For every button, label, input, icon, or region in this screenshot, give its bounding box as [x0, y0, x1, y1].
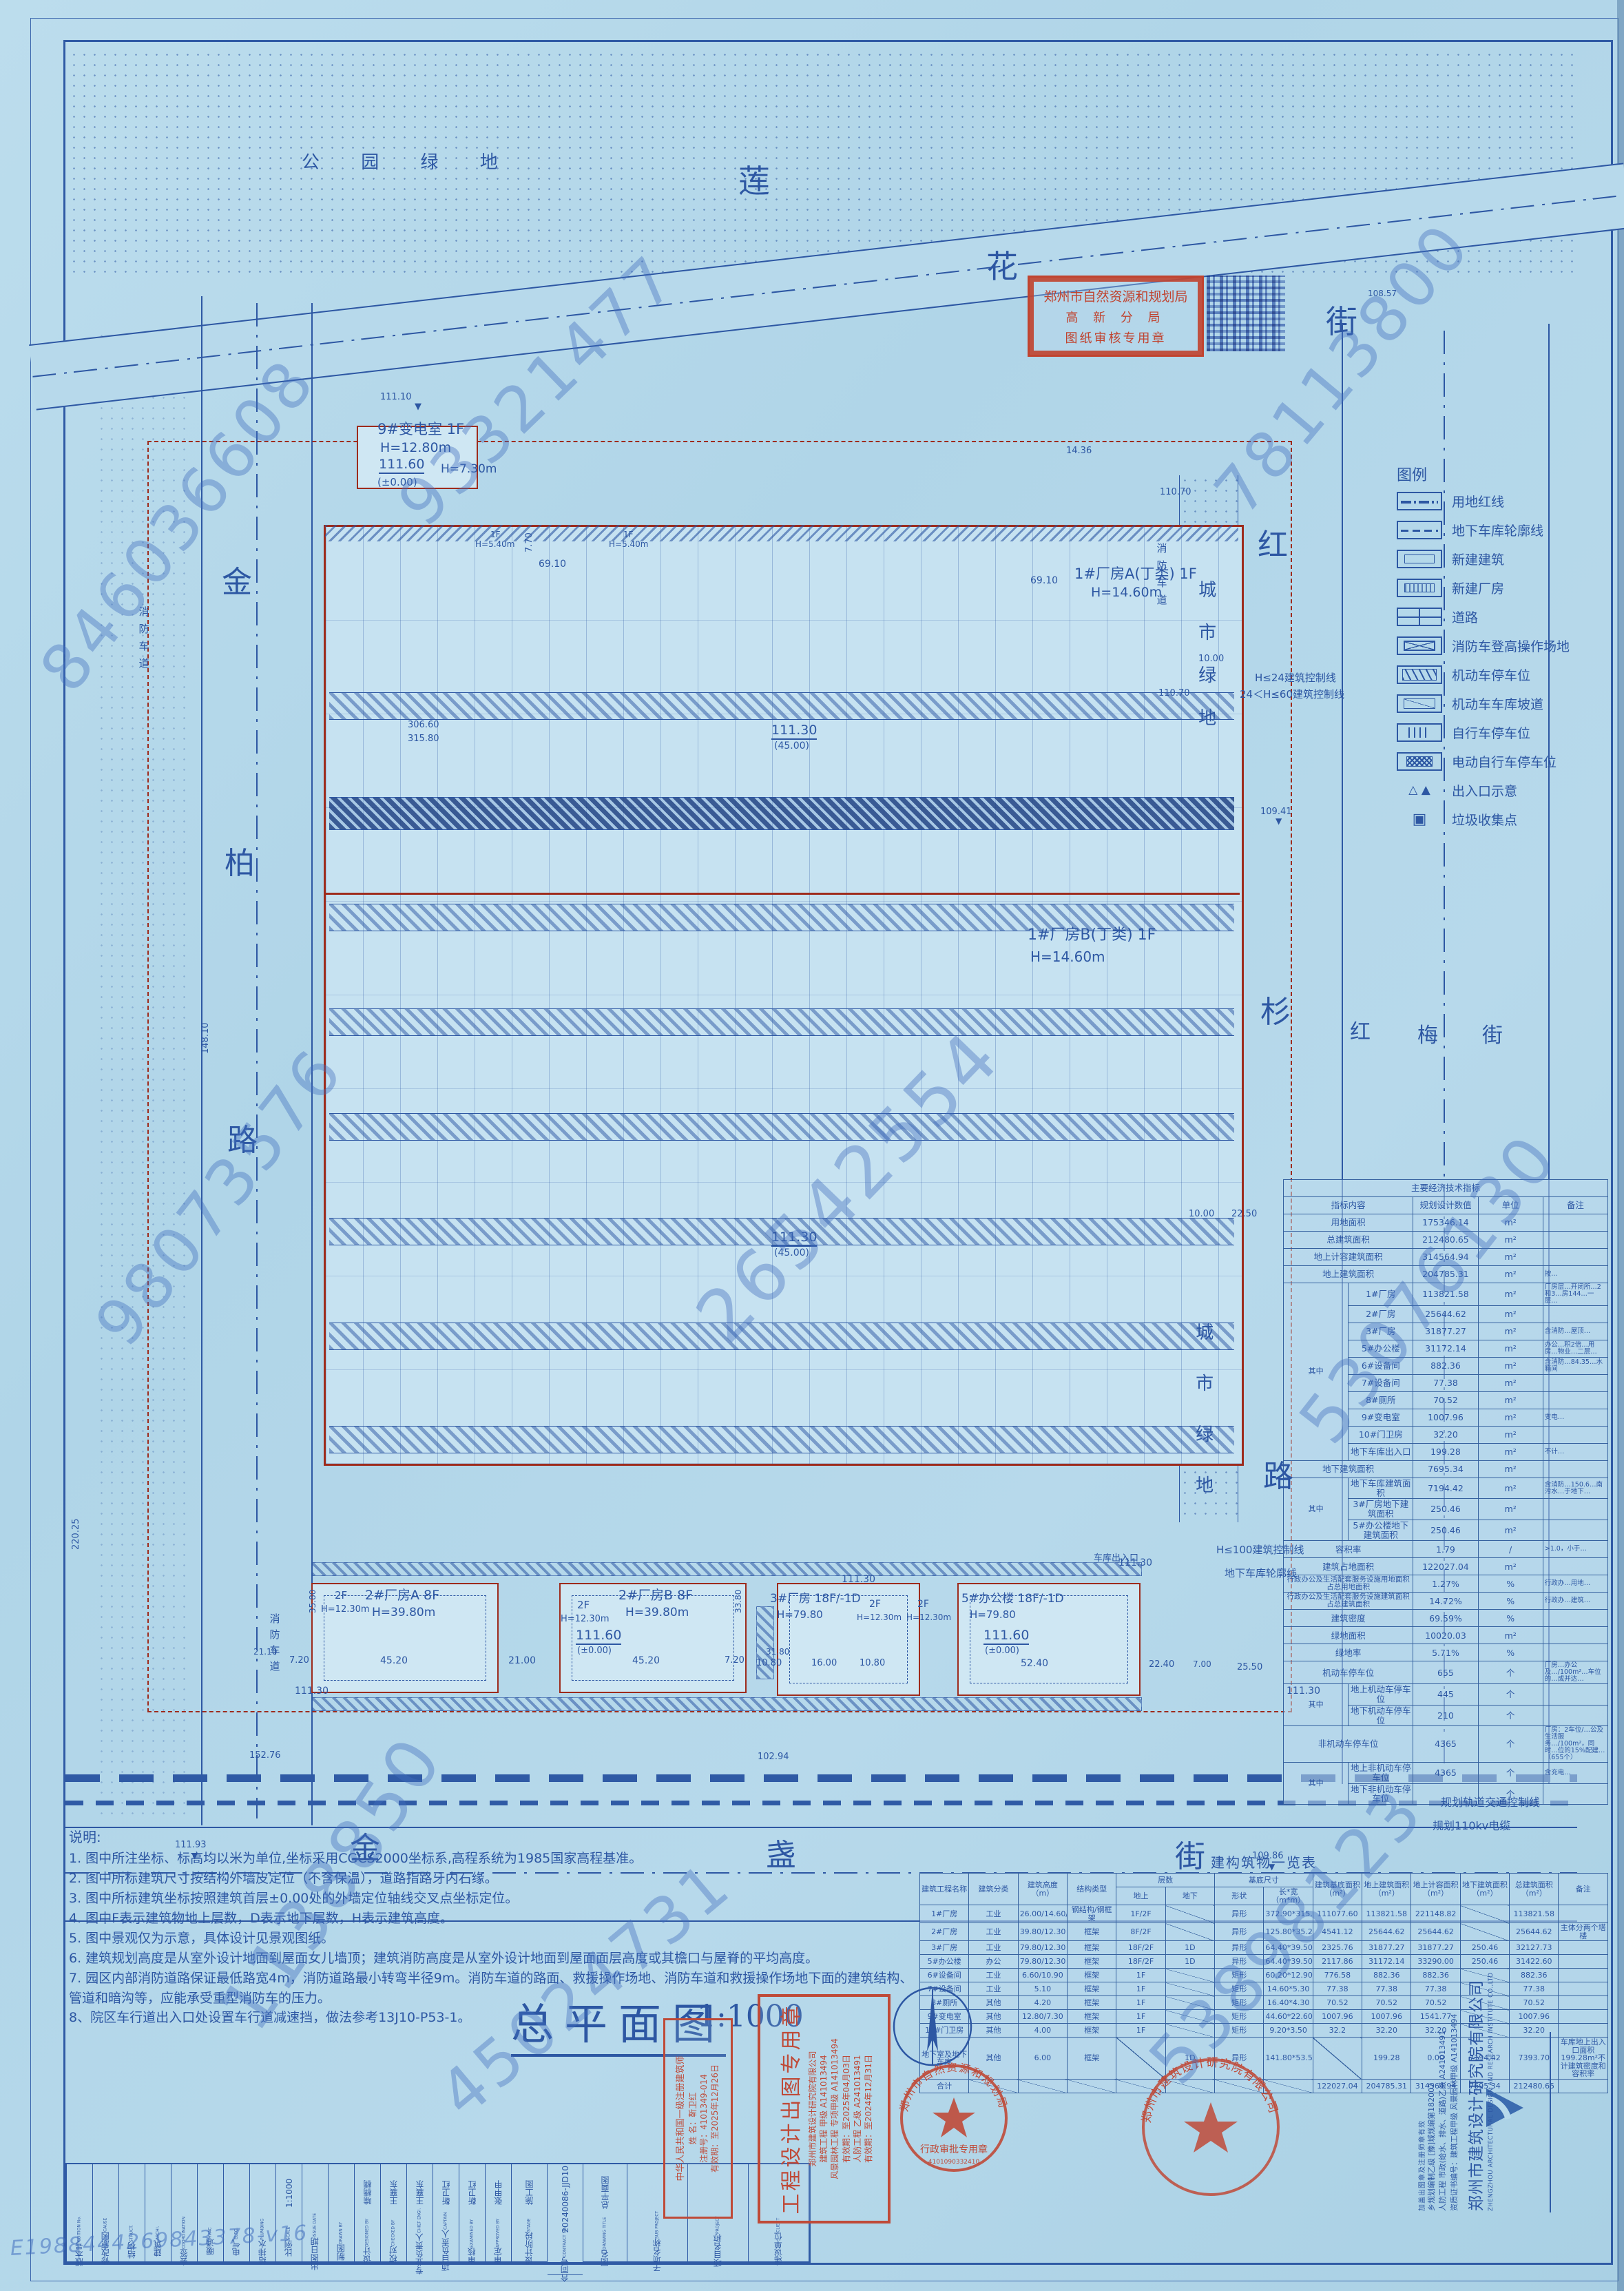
- table-cell: [1543, 1684, 1607, 1706]
- table-cell: 125.80*35.20: [1264, 1923, 1313, 1941]
- table-cell: 异形: [1215, 1905, 1264, 1923]
- titleblock-label-en: DESIGNED BY: [365, 2219, 369, 2248]
- table-cell: 结构类型: [1068, 1874, 1116, 1905]
- table-cell: [1165, 1969, 1214, 1982]
- titleblock-label: 子项名称SUB PROJECT: [627, 2221, 687, 2262]
- table-cell: 113821.58: [1510, 1905, 1559, 1923]
- table-cell: 框架: [1068, 1969, 1116, 1982]
- table-cell: [1543, 1783, 1607, 1805]
- titleblock-col-修改原因: 修改原因CAUSE: [93, 2164, 119, 2262]
- titleblock-label-en: COORDINATION: [182, 2217, 186, 2250]
- stamp-line: 注册号：4101349-014: [698, 2074, 709, 2163]
- table-cell: 异形: [1215, 1923, 1264, 1941]
- table-cell: 个: [1478, 1783, 1543, 1805]
- table-cell: 单位: [1478, 1197, 1543, 1214]
- table-cell: m²: [1478, 1426, 1543, 1443]
- table-cell: 地上: [1116, 1887, 1165, 1905]
- table-cell: 1007.96: [1313, 2010, 1362, 2024]
- stamp-line: 郑州市自然资源和规划局: [1043, 287, 1187, 305]
- new-fact-symbol-icon: [1397, 579, 1442, 597]
- table-cell: [1543, 1232, 1607, 1249]
- table-cell: 250.46: [1460, 1955, 1509, 1969]
- internal-road-band: [329, 1218, 1234, 1245]
- table-cell: 工业: [969, 1969, 1018, 1982]
- table-cell: 地上机动车停车位: [1349, 1684, 1413, 1706]
- table-cell: 1F: [1116, 1982, 1165, 1996]
- table-cell: 70.52: [1313, 1996, 1362, 2010]
- issue-stamp: 工程设计出图专用章 郑州市建筑设计研究院有限公司 建筑工程 甲级 A141013…: [758, 1994, 891, 2223]
- table-cell: 5.10: [1018, 1982, 1067, 1996]
- trash-symbol-icon: [1397, 810, 1442, 829]
- table-cell: 容积率: [1284, 1541, 1413, 1558]
- table-cell: %: [1478, 1644, 1543, 1661]
- table-cell: 7194.42: [1413, 1478, 1478, 1499]
- titleblock-col-制图: 制图DRAWN BY: [329, 2164, 355, 2262]
- table-cell: 框架: [1068, 1955, 1116, 1969]
- table-cell: 3#厂房地下建筑面积: [1349, 1499, 1413, 1520]
- entry-symbol-icon: [1397, 781, 1442, 800]
- table-cell: 1.27%: [1413, 1575, 1478, 1593]
- table-cell: 250.46: [1413, 1499, 1478, 1520]
- table-cell: 44.60*22.60: [1264, 2010, 1313, 2024]
- table-cell: m²: [1478, 1478, 1543, 1499]
- table-cell: 4541.12: [1313, 1923, 1362, 1941]
- titleblock-col-合同号: 20240086-JJD10合同号CONTRACT No.: [548, 2164, 583, 2262]
- table-cell: 矩形: [1215, 1996, 1264, 2010]
- titleblock-label-en: ARCHI.: [156, 2226, 160, 2240]
- table-cell: 122027.04: [1313, 2080, 1362, 2093]
- table-cell: 行政办公及生活配套服务设施建筑面积占总建筑面积: [1284, 1593, 1413, 1610]
- note-item: 1. 图中所注坐标、标高均以米为单位,坐标采用CGCS2000坐标系,高程系统为…: [69, 1849, 923, 1869]
- table-cell: 4.00: [1018, 2024, 1067, 2038]
- table-cell: 建筑基底面积（m²）: [1313, 1874, 1362, 1905]
- table-cell: 25644.62: [1413, 1305, 1478, 1323]
- table-cell: 372.90*315.60: [1264, 1905, 1313, 1923]
- table-cell: 31422.60: [1510, 1955, 1559, 1969]
- note-item: 3. 图中所标建筑坐标按照建筑首层±0.00处的外墙定位轴线交叉点坐标定位。: [69, 1889, 923, 1909]
- titleblock-label-cn: 项目负责人: [441, 2230, 450, 2271]
- titleblock-label-cn: 专业负责人: [415, 2233, 424, 2274]
- titleblock-label-en: PLUMBING: [260, 2218, 264, 2239]
- table-cell: m²: [1478, 1305, 1543, 1323]
- svg-text:4101090332410: 4101090332410: [928, 2159, 980, 2166]
- titleblock-col-结构: 结构STRUCT.: [119, 2164, 145, 2262]
- building-tower-outline: [789, 1595, 908, 1683]
- table-cell: 厂房…办公及…/100m²…车位的…成并达…: [1543, 1661, 1607, 1684]
- table-cell: 框架: [1068, 1941, 1116, 1955]
- titleblock-col-项目负责人: 靳卫红项目负责人CAPTAIN: [433, 2164, 459, 2262]
- building-9-substation: [357, 426, 478, 489]
- titleblock-value: 王襄东: [388, 2164, 399, 2221]
- table-cell: 16.40*4.30: [1264, 1996, 1313, 2010]
- titleblock-label-en: EXAMINED BY: [470, 2219, 474, 2247]
- table-cell: [1559, 1941, 1608, 1955]
- legend-item-label: 新建厂房: [1452, 579, 1504, 597]
- table-cell: 70.52: [1510, 1996, 1559, 2010]
- table-cell: 776.58: [1313, 1969, 1362, 1982]
- table-cell: 1D: [1165, 1941, 1214, 1955]
- titleblock-label-en: ELEC.: [234, 2227, 238, 2239]
- table-cell: 个: [1478, 1684, 1543, 1706]
- legend-item-label: 新建建筑: [1452, 550, 1504, 568]
- titleblock-label: 建筑ARCHI.: [145, 2221, 171, 2262]
- table-cell: m²: [1478, 1627, 1543, 1644]
- titleblock-label-cn: 电气: [232, 2239, 241, 2256]
- road-symbol-icon: [1397, 608, 1442, 626]
- titleblock-label-en: CAPTAIN: [444, 2212, 448, 2229]
- titleblock-col-给排水: 给排水PLUMBING: [250, 2164, 276, 2262]
- titleblock-value: 张甲甲: [492, 2164, 504, 2221]
- legend-item-label: 道路: [1452, 608, 1478, 626]
- table-cell: [1543, 1249, 1607, 1266]
- garage-outline-symbol-icon: [1397, 521, 1442, 539]
- table-cell: /: [1478, 1541, 1543, 1558]
- table-cell: [1068, 2080, 1116, 2093]
- stamp-line: 高 新 分 局: [1065, 308, 1165, 326]
- legend-item: 出入口示意: [1397, 781, 1607, 800]
- table-cell: 建筑密度: [1284, 1610, 1413, 1627]
- table-cell: 7#设备间: [1349, 1374, 1413, 1391]
- table-cell: 建筑分类: [969, 1874, 1018, 1905]
- table-cell: 1007.96: [1413, 1409, 1478, 1426]
- factory-roof-hatch: [325, 525, 1238, 541]
- table-cell: 个: [1478, 1705, 1543, 1726]
- table-cell: 矩形: [1215, 2024, 1264, 2038]
- table-cell: 250.46: [1460, 1941, 1509, 1955]
- table-cell: 6#设备间: [1349, 1357, 1413, 1374]
- table-cell: 10#门卫房: [1349, 1426, 1413, 1443]
- legend-item: 机动车停车位: [1397, 665, 1607, 684]
- table-cell: 25644.62: [1362, 1923, 1411, 1941]
- table-cell: [1543, 1374, 1607, 1391]
- table-cell: 矩形: [1215, 1969, 1264, 1982]
- titleblock-col-专业负责人: 王襄东专业负责人CHIEF ENGI.: [407, 2164, 433, 2262]
- table-cell: 1007.96: [1362, 2010, 1411, 2024]
- titleblock-label: 会签COORDINATION: [171, 2221, 197, 2262]
- table-cell: 变电…: [1543, 1409, 1607, 1426]
- table-cell: 其中: [1284, 1478, 1349, 1541]
- titleblock-label-en: CHIEF ENGI.: [417, 2208, 421, 2233]
- titleblock-value: 20240086-JJD10: [561, 2164, 570, 2235]
- table-cell: 总建筑面积（m²）: [1510, 1874, 1559, 1905]
- table-cell: [1543, 1391, 1607, 1409]
- table-cell: m²: [1478, 1499, 1543, 1520]
- table-cell: 地下建筑面积: [1284, 1460, 1413, 1478]
- titleblock-label-cn: 项目名称: [714, 2234, 722, 2267]
- table-cell: 框架: [1068, 2038, 1116, 2080]
- note-item: 2. 图中所标建筑尺寸按结构外墙皮定位（不含保温），道路指路牙内石缘。: [69, 1869, 923, 1889]
- stamp-line: 姓 名：靳卫红: [687, 2093, 698, 2145]
- table-cell: m²: [1478, 1391, 1543, 1409]
- table-cell: m²: [1478, 1443, 1543, 1460]
- titleblock-col-暖通: 暖通HVAC: [198, 2164, 224, 2262]
- table-cell: 64.40*39.50: [1264, 1941, 1313, 1955]
- table-cell: 1F: [1116, 1996, 1165, 2010]
- table-cell: m²: [1478, 1460, 1543, 1478]
- table-cell: 4365: [1413, 1726, 1478, 1763]
- titleblock-value: 总平面图: [599, 2164, 611, 2221]
- company-cert: 人防工程 市政(给水、排水、道路)乙级 A241013491: [1437, 2032, 1449, 2211]
- table-cell: [1559, 1982, 1608, 1996]
- titleblock-label-cn: 制图: [337, 2244, 346, 2261]
- titleblock-label-cn: 图名: [601, 2250, 610, 2266]
- table-cell: 2325.76: [1313, 1941, 1362, 1955]
- table-cell: [1559, 2010, 1608, 2024]
- table-cell: 长*宽（m*m）: [1264, 1887, 1313, 1905]
- note-item: 5. 图中景观仅为示意，具体设计见景观图纸。: [69, 1929, 923, 1949]
- table-cell: 122027.04: [1413, 1558, 1478, 1575]
- table-cell: 5#办公楼: [1349, 1340, 1413, 1357]
- titleblock-label-cn: 比例: [284, 2240, 293, 2257]
- building-tower-outline: [970, 1595, 1128, 1683]
- table-cell: 规划设计数值: [1413, 1197, 1478, 1214]
- table-cell: 办公: [969, 1955, 1018, 1969]
- table-cell: 绿地面积: [1284, 1627, 1413, 1644]
- table-cell: 31172.14: [1362, 1955, 1411, 1969]
- table-cell: [1313, 2038, 1362, 2080]
- fire-lane-band: [329, 797, 1234, 830]
- table-cell: [1543, 1558, 1607, 1575]
- building-2b-factory: [559, 1583, 747, 1693]
- table-cell: 1#厂房: [1349, 1283, 1413, 1306]
- titleblock-col-设计阶段: 施工图设计阶段STAGE: [512, 2164, 548, 2262]
- table-cell: 其他: [969, 2010, 1018, 2024]
- table-cell: 地上非机动车停车位: [1349, 1763, 1413, 1784]
- titleblock-label-cn: 结构: [127, 2242, 136, 2259]
- legend-item: 新建厂房: [1397, 579, 1607, 597]
- legend-item-label: 地下车库轮廓线: [1452, 521, 1543, 539]
- table-cell: 建筑工程名称: [920, 1874, 969, 1905]
- table-cell: 含消防…84.35…水箱间: [1543, 1357, 1607, 1374]
- table-cell: 199.28: [1413, 1443, 1478, 1460]
- table-cell: 33290.00: [1411, 1955, 1460, 1969]
- titleblock-label: 校对CHECKED BY: [381, 2221, 406, 2262]
- table-cell: 69.59%: [1413, 1610, 1478, 1627]
- table-cell: 建筑占地面积: [1284, 1558, 1413, 1575]
- table-cell: 1F: [1116, 1969, 1165, 1982]
- titleblock-label-cn: 修改原因: [101, 2232, 110, 2265]
- titleblock-label-cn: 建筑: [154, 2240, 163, 2257]
- table-cell: 1D: [1165, 1955, 1214, 1969]
- table-cell: m²: [1478, 1232, 1543, 1249]
- table-cell: 厂房：2车位/…公及生活服务…/100m²，同时…位的15%配建…（655个）: [1543, 1726, 1607, 1763]
- table-cell: 70.52: [1413, 1391, 1478, 1409]
- table-cell: 车库地上出入口面积199.28m²不计建筑密度和容积率: [1559, 2038, 1608, 2080]
- titleblock-label: 暖通HVAC: [198, 2221, 223, 2262]
- titleblock-col-校对: 王襄东校对CHECKED BY: [381, 2164, 407, 2262]
- titleblock-label-en: CAUSE: [103, 2218, 107, 2232]
- building-2a-factory: [311, 1583, 499, 1693]
- table-cell: m²: [1478, 1520, 1543, 1541]
- legend-item: 地下车库轮廓线: [1397, 521, 1607, 539]
- table-cell: %: [1478, 1575, 1543, 1593]
- table-cell: 地上计容建筑面积: [1284, 1249, 1413, 1266]
- table-cell: 210: [1413, 1705, 1478, 1726]
- table-cell: 5#办公楼地下建筑面积: [1349, 1520, 1413, 1541]
- titleblock-label-cn: 子项名称: [653, 2239, 662, 2272]
- table-cell: 882.36: [1510, 1969, 1559, 1982]
- parking-symbol-icon: [1397, 665, 1442, 684]
- table-cell: [1165, 1905, 1214, 1923]
- table-cell: 7695.34: [1413, 1460, 1478, 1478]
- table-cell: 机动车停车位: [1284, 1661, 1413, 1684]
- ebike-symbol-icon: [1397, 752, 1442, 771]
- table-cell: >1.0，小于…: [1543, 1541, 1607, 1558]
- table-cell: 含充电…: [1543, 1763, 1607, 1784]
- table-cell: 其中: [1284, 1283, 1349, 1461]
- titleblock-col-审核: 靳卫红审核EXAMINED BY: [459, 2164, 486, 2262]
- table-cell: [1165, 1996, 1214, 2010]
- titleblock-label: 建设单位CLIENT: [749, 2221, 809, 2262]
- table-cell: [1543, 1305, 1607, 1323]
- notes-title: 说明:: [69, 1827, 923, 1847]
- titleblock-label: 项目负责人CAPTAIN: [433, 2221, 459, 2262]
- legend-item: 用地红线: [1397, 492, 1607, 510]
- stamp-title: 工程设计出图专用章: [774, 2004, 804, 2215]
- table-cell: 地上建筑面积（m²）: [1362, 1874, 1411, 1905]
- table-cell: 4365: [1413, 1763, 1478, 1784]
- table-cell: [1543, 1627, 1607, 1644]
- internal-road-band: [329, 1323, 1234, 1350]
- table-cell: 9#变电室: [1349, 1409, 1413, 1426]
- legend-item: 机动车车库坡道: [1397, 694, 1607, 713]
- table-cell: 77.38: [1510, 1982, 1559, 1996]
- building-3-factory: [777, 1583, 920, 1696]
- table-cell: 工业: [969, 1982, 1018, 1996]
- redline-symbol-icon: [1397, 492, 1442, 510]
- internal-road-band: [329, 1113, 1234, 1141]
- table-cell: [1543, 1705, 1607, 1726]
- table-cell: [1018, 2080, 1067, 2093]
- table-cell: 框架: [1068, 2024, 1116, 2038]
- table-cell: 14.60*5.30: [1264, 1982, 1313, 1996]
- table-cell: 655: [1413, 1661, 1478, 1684]
- table-cell: 层数: [1116, 1874, 1215, 1887]
- table-cell: 地下机动车停车位: [1349, 1705, 1413, 1726]
- table-cell: [1559, 1969, 1608, 1982]
- table-cell: 204785.31: [1413, 1266, 1478, 1283]
- titleblock-label-en: DRAWN BY: [339, 2222, 343, 2244]
- company-note: 加盖出图章及注册师章有效: [1416, 2032, 1426, 2211]
- internal-road-band: [329, 1426, 1234, 1453]
- table-cell: 2117.86: [1313, 1955, 1362, 1969]
- table-cell: [1543, 1610, 1607, 1627]
- table-cell: [1543, 1460, 1607, 1478]
- building-tower-outline: [324, 1595, 486, 1681]
- table-cell: 个: [1478, 1661, 1543, 1684]
- table-cell: 175346.14: [1413, 1214, 1478, 1232]
- table-cell: m²: [1478, 1283, 1543, 1306]
- table-cell: 39.80/12.30: [1018, 1923, 1067, 1941]
- company-divider: [1550, 2032, 1551, 2212]
- titleblock-label: 结构STRUCT.: [119, 2221, 145, 2262]
- titleblock-label: 合同号CONTRACT No.: [548, 2235, 583, 2275]
- table-cell: [1460, 1923, 1509, 1941]
- table-cell: 个: [1478, 1763, 1543, 1784]
- table-cell: 77.38: [1313, 1982, 1362, 1996]
- table-cell: 含消防…150.6…南污水…于地下…: [1543, 1478, 1607, 1499]
- fire-operation-strip: [311, 1697, 1142, 1711]
- titleblock-label-en: DRAWING TITLE: [603, 2217, 607, 2249]
- table-cell: 18F/2F: [1116, 1955, 1165, 1969]
- table-cell: 框架: [1068, 1996, 1116, 2010]
- table-cell: 32.20: [1413, 1426, 1478, 1443]
- internal-road-band: [329, 1008, 1234, 1036]
- table-cell: 异形: [1215, 1941, 1264, 1955]
- table-cell: [1460, 1905, 1509, 1923]
- table-cell: 14.72%: [1413, 1593, 1478, 1610]
- table-cell: [1559, 2080, 1608, 2093]
- table-cell: 矩形: [1215, 2010, 1264, 2024]
- table-cell: 基底尺寸: [1215, 1874, 1313, 1887]
- titleblock-col-审定: 张甲甲审定APPROVED BY: [486, 2164, 512, 2262]
- table-cell: 8F/2F: [1116, 1923, 1165, 1941]
- titleblock-label: 审核EXAMINED BY: [459, 2221, 485, 2262]
- stamp-line: 人防工程 乙级 A241013491: [852, 2055, 863, 2163]
- table-cell: 地下: [1165, 1887, 1214, 1905]
- table-cell: 18F/2F: [1116, 1941, 1165, 1955]
- table-cell: [1165, 2024, 1214, 2038]
- blueprint-sheet: 郑州市自然资源和规划局 高 新 分 局 图纸审核专用章 图例 用地红线地下车库轮…: [0, 0, 1624, 2291]
- bike-symbol-icon: [1397, 723, 1442, 742]
- table-cell: 3#厂房: [1349, 1323, 1413, 1340]
- titleblock-label-en: STRUCT.: [129, 2224, 134, 2241]
- table-cell: m²: [1478, 1323, 1543, 1340]
- table-cell: 113821.58: [1413, 1283, 1478, 1306]
- ramp-symbol-icon: [1397, 694, 1442, 713]
- table-cell: 31877.27: [1411, 1941, 1460, 1955]
- table-cell: 1F: [1116, 2024, 1165, 2038]
- table-cell: 形状: [1215, 1887, 1264, 1905]
- table-cell: m²: [1478, 1409, 1543, 1426]
- fire-operation-strip: [311, 1562, 1142, 1576]
- fire-symbol-icon: [1397, 636, 1442, 655]
- table-cell: [1165, 1923, 1214, 1941]
- table-cell: 不计…: [1543, 1443, 1607, 1460]
- table-cell: 25644.62: [1411, 1923, 1460, 1941]
- table-cell: 9.20*3.50: [1264, 2024, 1313, 2038]
- table-cell: 绿地率: [1284, 1644, 1413, 1661]
- titleblock-col-比例: 1:1000比例SCALE: [276, 2164, 302, 2262]
- titleblock-label-en: HVAC: [208, 2228, 212, 2239]
- table-cell: [1165, 1982, 1214, 1996]
- titleblock-value: 靳卫红: [466, 2164, 478, 2221]
- internal-road-band: [329, 904, 1234, 931]
- company-block: 加盖出图章及注册师章有效 乡规划编制乙级 [豫]城规编第182002 人防工程 …: [1362, 2032, 1548, 2211]
- table-cell: 111077.60: [1313, 1905, 1362, 1923]
- table-cell: 12.80/7.30: [1018, 2010, 1067, 2024]
- table-cell: 70.52: [1362, 1996, 1411, 2010]
- table-cell: 地下车库出入口: [1349, 1443, 1413, 1460]
- review-stamp: 郑州市自然资源和规划局 高 新 分 局 图纸审核专用章: [1028, 276, 1204, 357]
- table-cell: 其中: [1284, 1763, 1349, 1805]
- legend-item: 消防车登高操作场地: [1397, 636, 1607, 655]
- table-cell: 行政办公及生活配套服务设施用地面积占总用地面积: [1284, 1575, 1413, 1593]
- note-item: 4. 图中F表示建筑物地上层数，D表示地下层数，H表示建筑高度。: [69, 1909, 923, 1929]
- table-cell: 314564.94: [1413, 1249, 1478, 1266]
- table-cell: 77.38: [1411, 1982, 1460, 1996]
- table-cell: [1559, 2024, 1608, 2038]
- table-cell: 框架: [1068, 2010, 1116, 2024]
- legend-item-label: 自行车停车位: [1452, 723, 1530, 742]
- note-item: 6. 建筑规划高度是从室外设计地面到屋面女儿墙顶；建筑消防高度是从室外设计地面到…: [69, 1949, 923, 1969]
- titleblock-label-en: APPROVED BY: [496, 2219, 500, 2248]
- table-cell: 总建筑面积: [1284, 1232, 1413, 1249]
- titleblock-label-cn: 审核: [468, 2248, 477, 2264]
- table-cell: 1F: [1116, 2010, 1165, 2024]
- table-cell: 建筑高度（m）: [1018, 1874, 1067, 1905]
- titleblock-label: 版本号EDITION No.: [67, 2221, 92, 2262]
